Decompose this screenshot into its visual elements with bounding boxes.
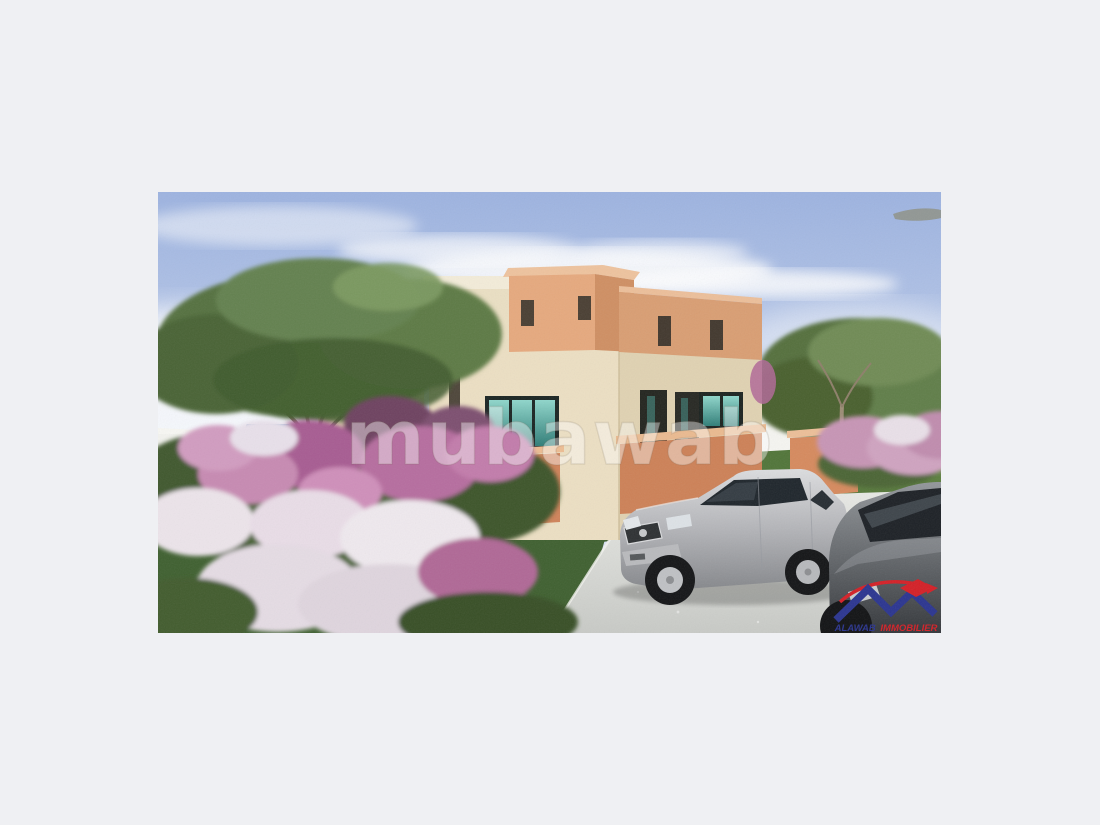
rendering-scene: mubawab ALAWAB IMMOBILIER (158, 192, 941, 633)
listing-photo: mubawab ALAWAB IMMOBILIER (158, 192, 941, 633)
photo-grain-overlay (158, 192, 941, 633)
